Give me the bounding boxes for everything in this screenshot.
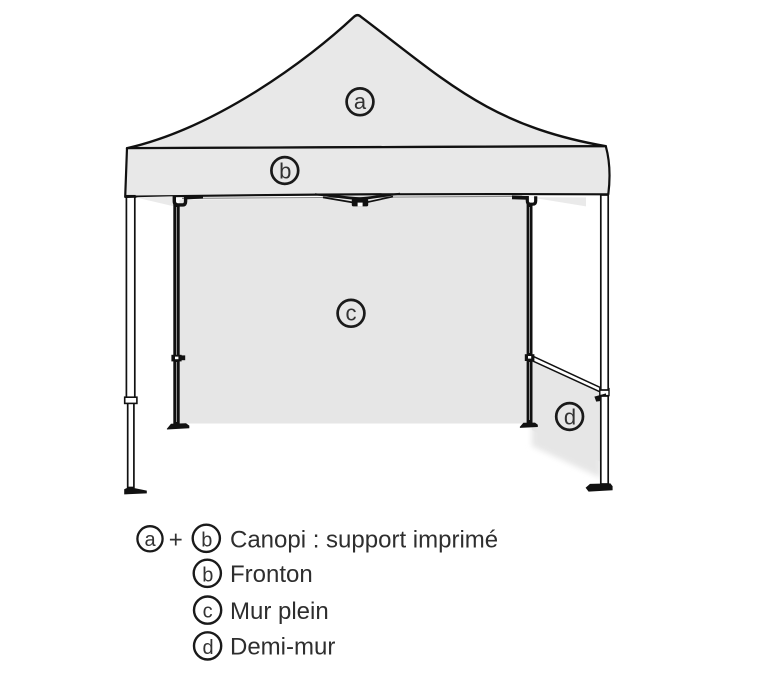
svg-text:Fronton: Fronton bbox=[230, 561, 313, 588]
svg-text:c: c bbox=[203, 600, 213, 622]
svg-text:+: + bbox=[169, 527, 183, 554]
svg-text:b: b bbox=[202, 564, 213, 586]
svg-text:Demi-mur: Demi-mur bbox=[230, 634, 335, 661]
svg-text:d: d bbox=[564, 405, 576, 430]
svg-text:d: d bbox=[203, 637, 214, 659]
svg-text:b: b bbox=[279, 159, 291, 184]
svg-text:a: a bbox=[354, 89, 367, 114]
svg-text:Mur plein: Mur plein bbox=[230, 598, 329, 625]
svg-text:a: a bbox=[144, 529, 156, 551]
svg-text:c: c bbox=[346, 301, 357, 326]
svg-text:Canopi : support imprimé: Canopi : support imprimé bbox=[230, 526, 498, 553]
svg-text:b: b bbox=[201, 529, 212, 551]
